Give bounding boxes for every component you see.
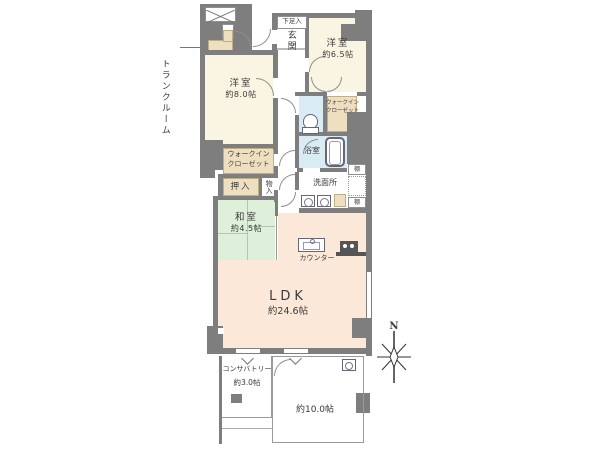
counter-edge xyxy=(336,252,366,256)
door-arc xyxy=(253,29,271,47)
sink-icon xyxy=(301,195,315,207)
burner-dot xyxy=(343,244,347,248)
conservatory-name: コンサバトリー xyxy=(222,363,272,376)
wall xyxy=(299,208,372,213)
cabinet-box xyxy=(334,194,346,207)
wall xyxy=(273,98,278,150)
wall xyxy=(305,72,309,94)
burner-dot xyxy=(350,244,354,248)
washitsu-name: 和室 xyxy=(218,212,275,224)
wall xyxy=(273,53,278,78)
wic-left-line1: ウォークイン xyxy=(223,149,274,159)
wall xyxy=(274,144,278,154)
wall xyxy=(200,53,205,150)
washitsu-size: 約4.5帖 xyxy=(218,224,275,234)
oshiire-label: 押入 xyxy=(223,182,259,193)
wall xyxy=(218,196,278,200)
shelf-top-label: 棚 xyxy=(348,166,366,174)
bathtub-icon xyxy=(325,137,345,167)
bedroom-8-size: 約8.0帖 xyxy=(211,90,271,100)
sink-bowl xyxy=(320,198,329,207)
washitsu-label: 和室 約4.5帖 xyxy=(218,212,275,235)
wall xyxy=(320,168,347,172)
wall xyxy=(223,174,278,178)
floor-plan: トランクルーム 下足入 玄関 洋室 約6.5帖 洋室 約8.0帖 ウォークイン … xyxy=(0,0,600,450)
washroom-label: 洗面所 xyxy=(303,178,347,188)
compass-star-icon xyxy=(374,331,414,383)
ldk-size: 約24.6帖 xyxy=(248,306,328,318)
bedroom-65-size: 約6.5帖 xyxy=(310,50,366,60)
trunk-room-label: トランクルーム xyxy=(158,22,170,172)
wic-upper-label: ウォークイン クローゼット xyxy=(326,99,358,116)
faucet-box-icon xyxy=(342,359,356,371)
wall xyxy=(223,144,278,148)
conservatory-label: コンサバトリー 約3.0帖 xyxy=(222,363,272,391)
wic-upper-line2: クローゼット xyxy=(326,107,358,115)
wic-left-line2: クローゼット xyxy=(223,159,274,169)
bath-label: 浴室 xyxy=(300,146,324,156)
faucet-dot xyxy=(310,239,315,244)
monoire-label: 物入 xyxy=(264,180,273,194)
room-bedroom-8 xyxy=(205,55,273,148)
shoe-storage-label: 下足入 xyxy=(277,17,307,25)
wall xyxy=(352,318,366,338)
toilet-tank-icon xyxy=(302,127,319,134)
terrace-label: 約10.0帖 xyxy=(289,405,341,417)
wall-notch xyxy=(218,328,224,334)
entrance-label: 玄関 xyxy=(284,30,296,52)
bedroom-65-label: 洋室 約6.5帖 xyxy=(310,38,366,61)
ldk-label: LDK 約24.6帖 xyxy=(248,289,328,318)
wall xyxy=(295,172,299,190)
kitchen-sink-icon xyxy=(298,238,325,252)
sink-bowl xyxy=(304,198,313,207)
faucet-circle xyxy=(345,362,353,370)
stove-icon xyxy=(340,241,358,252)
fusuma-line xyxy=(276,216,277,260)
wall xyxy=(203,50,278,55)
shelf-dotted-area xyxy=(348,176,366,196)
bedroom-65-name: 洋室 xyxy=(310,38,366,50)
balcony-step-line xyxy=(222,428,272,429)
wall xyxy=(275,200,278,216)
wic-upper-line1: ウォークイン xyxy=(326,99,358,107)
ldk-name: LDK xyxy=(248,289,328,306)
shelf-bottom-label: 棚 xyxy=(348,199,366,207)
wic-left-label: ウォークイン クローゼット xyxy=(223,149,274,169)
bedroom-8-label: 洋室 約8.0帖 xyxy=(211,78,271,101)
conservatory-size: 約3.0帖 xyxy=(222,376,272,390)
door-arc xyxy=(279,174,295,190)
door-arc xyxy=(279,150,295,166)
window-gap xyxy=(367,272,371,318)
door-arc xyxy=(281,192,296,207)
bathtub-inner xyxy=(329,141,341,165)
bedroom-8-name: 洋室 xyxy=(211,78,271,90)
pipe-shaft-box xyxy=(205,7,236,22)
sink-icon xyxy=(317,195,331,207)
counter-label: カウンター xyxy=(294,254,340,263)
wall xyxy=(347,112,372,164)
door-arc xyxy=(281,98,296,113)
trunk-pointer-line xyxy=(180,47,200,48)
cross-icon xyxy=(206,10,235,23)
trunk-storage xyxy=(223,30,233,42)
wall xyxy=(357,92,370,96)
wall xyxy=(295,136,299,168)
